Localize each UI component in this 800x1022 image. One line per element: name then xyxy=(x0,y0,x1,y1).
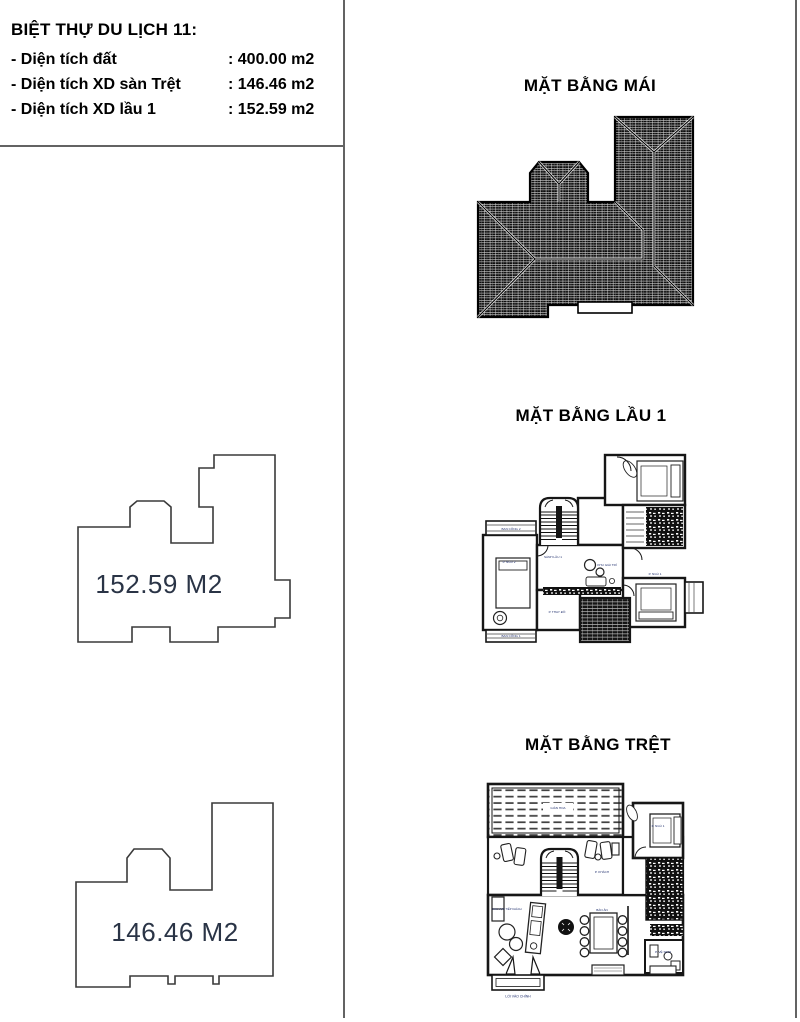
room-label: P. VỆ SINH xyxy=(655,949,671,954)
area-label-ground: 146.46 M2 xyxy=(111,917,238,947)
area-shape-ground-outline xyxy=(76,803,273,987)
area-label-floor1: 152.59 M2 xyxy=(95,569,222,599)
room-label: P. KHÁCH xyxy=(595,870,609,874)
room-label: BÀN ĂN xyxy=(596,908,608,912)
room-label: KHU GIẢI TRÍ xyxy=(597,562,617,567)
drawing-sheet: BIỆT THỰ DU LỊCH 11: - Diện tích đất : 4… xyxy=(0,0,800,1022)
room-label: P. NGỦ 1 xyxy=(649,571,662,576)
entrance-label: LỐI VÀO CHÍNH xyxy=(505,994,531,999)
room-label: BAN CÔNG 2 xyxy=(501,526,520,531)
area-shape-floor1-outline xyxy=(78,455,290,642)
ground-plan-drawing: GIÀN HOA xyxy=(488,784,683,999)
room-label: P. NGỦ 1 xyxy=(652,823,665,828)
room-label: P. THAY ĐỒ xyxy=(549,609,566,614)
room-label: SẢNH LẦU 1 xyxy=(544,554,562,559)
floor1-stair xyxy=(540,498,578,545)
room-label: GIÀN HOA xyxy=(550,806,566,810)
floor1-plan-drawing: BAN CÔNG 2 P. NGỦ 2 SẢNH LẦU 1 KHU GIẢI … xyxy=(483,455,703,642)
room-label: BAN CÔNG 1 xyxy=(501,633,520,638)
ground-stair xyxy=(541,849,578,896)
room-label: P. NGỦ 2 xyxy=(503,559,516,564)
drawing-canvas: 152.59 M2 146.46 M2 xyxy=(0,0,800,1022)
roof-ledge-notch xyxy=(578,302,632,313)
roof-plan-drawing xyxy=(478,117,693,317)
